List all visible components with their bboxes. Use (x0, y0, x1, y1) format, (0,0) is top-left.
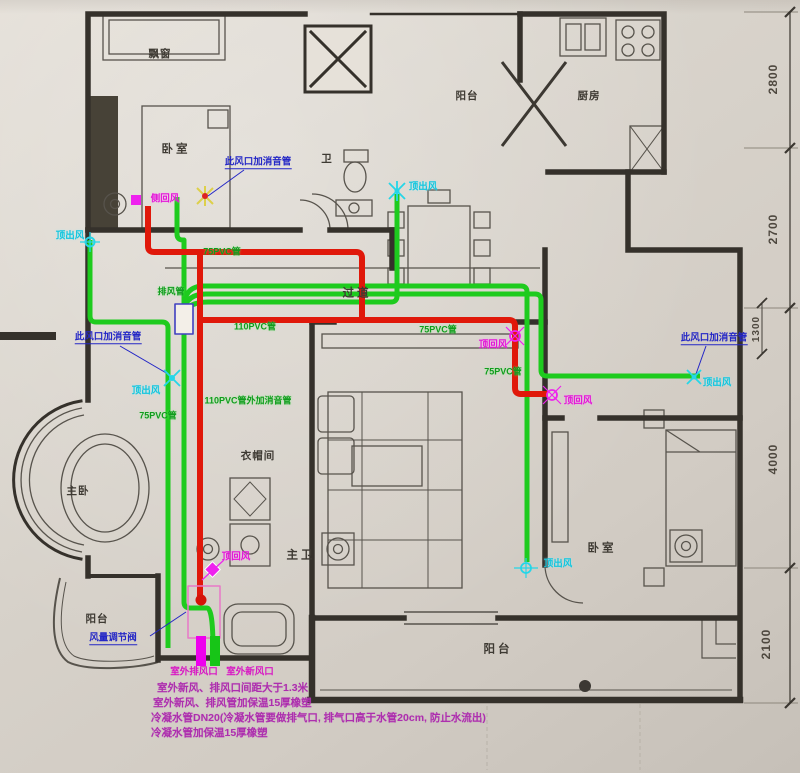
side-return-marker (131, 195, 141, 205)
supply-marker-bedroom-right (514, 558, 538, 578)
outdoor-fresh-port (210, 636, 220, 666)
ceiling-unit-icon (104, 193, 702, 565)
exhaust-duct-corridor (198, 320, 548, 394)
floorplan-canvas (0, 0, 800, 773)
scanned-floorplan: 飘窗 卧室 卫 阳台 厨房 过道 衣帽间 主卧 主卫 卧室 阳台 阳台 侧回风 … (0, 0, 800, 773)
outdoor-exhaust-port (196, 636, 206, 666)
dimension-chain (744, 7, 798, 708)
return-marker-master-bath (202, 560, 224, 580)
supply-marker-dining (389, 181, 405, 201)
supply-marker-left-top (80, 232, 100, 252)
outdoor-ports (188, 586, 220, 666)
supply-duct-bundle-2 (184, 294, 700, 376)
manifold-box (175, 304, 193, 334)
supply-ducts (90, 194, 700, 650)
silencer-diffuser-top (197, 186, 213, 206)
furniture-layer (21, 14, 736, 770)
